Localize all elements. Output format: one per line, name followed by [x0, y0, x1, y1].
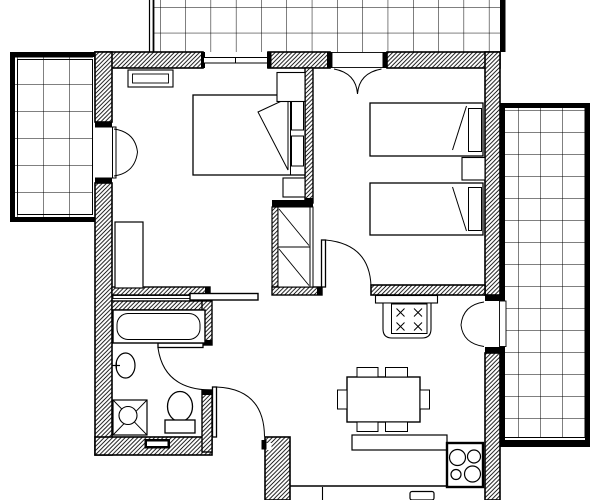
toilet-bowl — [168, 392, 193, 422]
hob-burner-1 — [450, 450, 466, 466]
terrace-tiles — [153, 0, 500, 52]
wall-top-b — [268, 52, 330, 68]
entry-door-strike-nub — [262, 440, 267, 450]
right-balcony-border-top — [500, 103, 590, 108]
sliding-door-panel — [190, 294, 258, 301]
balcony-door-threshold — [500, 301, 507, 347]
right-balcony-tiles — [505, 108, 585, 438]
bedroom1-pillow-a — [292, 100, 304, 130]
jamb-bedroom2-door — [317, 287, 323, 295]
dining-chair-bottom-right — [386, 422, 408, 432]
hob-burner-2 — [468, 450, 481, 463]
dining-chair-left — [338, 390, 348, 409]
jamb-balcony-door-top — [95, 122, 112, 128]
balcony-door-leaves — [113, 127, 117, 178]
sliding-door-track — [113, 296, 201, 299]
stove-counter-bar — [376, 296, 438, 304]
entry-wall-notch — [267, 443, 272, 450]
jamb-balcony-door-bottom — [95, 178, 112, 184]
plan-layers — [10, 0, 590, 500]
bedroom1-pillow-b — [292, 136, 304, 166]
dining-chair-top-left — [357, 368, 378, 378]
terrace-door-arc-left — [334, 69, 358, 94]
left-balcony-border-top — [10, 52, 95, 57]
left-balcony-border-bottom — [10, 217, 95, 222]
jamb-right-balcony-door-top — [485, 295, 500, 301]
wall-bedroom-divider — [305, 68, 313, 203]
terrace-right-border — [500, 0, 506, 52]
jamb-right-balcony-door-bottom — [485, 347, 500, 353]
wall-closet-bottom — [272, 287, 322, 295]
bedroom2-bed-a — [370, 103, 483, 156]
closet-front-doors — [310, 207, 313, 287]
divider-wall-cap — [305, 198, 313, 203]
dining-table — [347, 377, 420, 422]
living-balcony-door-arc-top — [461, 302, 484, 325]
bedroom2-bed-b — [370, 183, 483, 235]
jamb-terrace-door-left — [327, 52, 332, 68]
wall-closet-left — [272, 207, 278, 287]
shower-drain — [119, 407, 137, 425]
dining-chair-bottom-left — [357, 422, 378, 432]
wall-right-lower — [485, 353, 500, 500]
floor-plan-canvas — [0, 0, 600, 500]
bedroom1-dresser — [128, 70, 173, 87]
kitchen-counter — [352, 435, 447, 450]
bedroom1-nightstand-bottom — [283, 178, 305, 197]
right-balcony-border-bottom — [500, 440, 590, 447]
bedroom1-wardrobe — [115, 222, 143, 288]
bathroom-side-wall-cap — [202, 390, 212, 395]
living-bottom-cabinet — [410, 492, 434, 500]
bathroom-door-arc — [158, 348, 210, 390]
entrance-door-leaf — [213, 387, 217, 437]
wall-bathroom-side — [202, 390, 212, 452]
bathtub-inner — [117, 314, 200, 340]
terrace-door-threshold — [332, 53, 383, 68]
bedroom2-door-arc — [326, 240, 372, 286]
bedroom2-nightstand — [462, 158, 485, 181]
hob-burner-3 — [451, 470, 461, 480]
wall-top-c — [387, 52, 500, 68]
right-balcony-border-right — [585, 103, 590, 447]
bedroom1-nightstand-top — [277, 73, 305, 102]
toilet-tank — [165, 420, 195, 433]
wall-bathroom-top — [112, 301, 210, 310]
left-balcony-tiles — [15, 57, 93, 217]
bedroom2-door-leaf — [322, 240, 326, 287]
living-balcony-door-arc-bottom — [461, 325, 484, 347]
wall-left-lower — [95, 183, 112, 455]
dining-chair-top-right — [386, 368, 408, 378]
wall-left-upper — [95, 52, 112, 122]
bedroom2-pillow-a — [469, 109, 482, 152]
jamb-terrace-door-right — [383, 52, 388, 68]
hob-burner-4 — [465, 466, 481, 482]
left-balcony-border-left — [10, 52, 15, 222]
wall-right-upper — [485, 52, 500, 295]
wall-bedroom2-bottom — [371, 285, 485, 295]
bathroom-window-glass — [147, 442, 168, 447]
terrace-door-arc-right — [358, 69, 382, 94]
floor-plan-page — [0, 0, 600, 500]
dining-chair-right — [420, 390, 430, 409]
entrance-door-arc — [217, 387, 265, 437]
balcony-door-arc-bottom — [114, 152, 138, 176]
balcony-door-arc-top — [114, 129, 138, 152]
bedroom2-pillow-b — [469, 188, 482, 231]
